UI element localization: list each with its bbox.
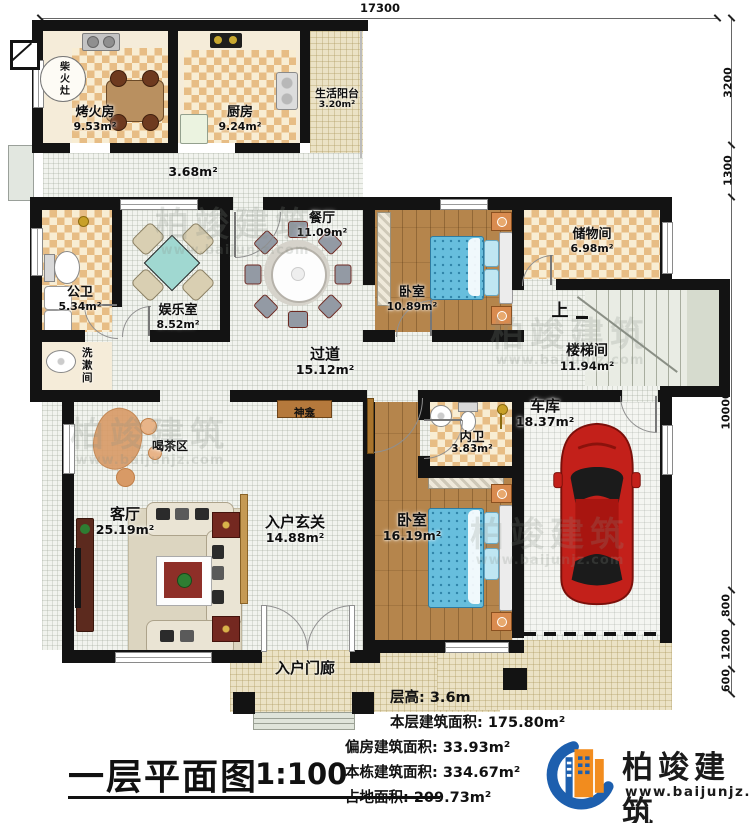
room-name: 客厅: [85, 506, 165, 523]
wall: [556, 279, 660, 290]
window: [662, 425, 673, 475]
cushion-icon: [180, 630, 194, 642]
tea-area-seat: [140, 418, 157, 435]
room-label-woshi1: 卧室 10.89m²: [372, 286, 452, 313]
porch-pillar: [503, 668, 527, 690]
porch-pillar: [352, 692, 374, 714]
room-label-keting: 客厅 25.19m²: [85, 506, 165, 537]
room-label-yangtai: 生活阳台 3.20m²: [305, 88, 369, 111]
window: [662, 222, 673, 274]
stair-landing: [687, 290, 719, 386]
window: [445, 642, 509, 653]
bed-sheet: [468, 238, 480, 296]
right-dimension-label: 600: [720, 659, 733, 703]
window: [120, 199, 198, 210]
wall: [719, 279, 730, 397]
room-label-yuleshi: 娱乐室 8.52m²: [138, 304, 218, 331]
door-leaf: [655, 396, 657, 432]
top-dimension-label: 17300: [352, 1, 408, 15]
tea-area-seat: [116, 468, 135, 487]
wood-partition: [240, 494, 248, 604]
nightstand-icon: [491, 212, 512, 231]
cushion-icon: [212, 566, 224, 580]
wall: [418, 466, 524, 478]
room-label-loutijian: 楼梯间 11.94m²: [545, 344, 629, 373]
plan-title: 一层平面图: [68, 748, 258, 800]
window: [63, 424, 75, 474]
room-name: 卧室: [372, 512, 452, 529]
stove-burner-icon: [87, 36, 99, 48]
room-area: 10.89m²: [372, 301, 452, 313]
room-name: 储物间: [552, 228, 632, 243]
dining-chair-icon: [245, 265, 262, 285]
wall: [40, 20, 368, 31]
room-name: 公卫: [45, 286, 115, 301]
room-label-annex-corridor: 3.68m²: [153, 165, 233, 179]
stat-line: 本层建筑面积: 175.80m²: [390, 711, 565, 732]
company-logo-url: www.baijunjz.com: [625, 784, 750, 800]
cushion-icon: [195, 508, 209, 520]
room-label-xishujian: 洗漱间: [80, 340, 92, 392]
room-name: 烤火房: [55, 106, 135, 121]
window: [31, 228, 43, 276]
door-leaf: [349, 605, 355, 652]
right-dimension-label: 800: [720, 584, 733, 628]
room-area: 15.12m²: [285, 363, 365, 377]
door-leaf: [550, 255, 552, 285]
stool-icon: [142, 70, 159, 87]
wall: [110, 143, 178, 153]
stair-up-dash: [576, 316, 588, 319]
room-label-canting: 餐厅 11.09m²: [282, 212, 362, 239]
room-area: 11.09m²: [282, 227, 362, 239]
room-name: 入户玄关: [245, 514, 345, 531]
cushion-icon: [212, 545, 224, 559]
bed-sheet: [468, 510, 480, 604]
kitchen-sink-icon: [276, 72, 298, 110]
wall: [30, 330, 85, 342]
room-area: 11.94m²: [545, 360, 629, 373]
cushion-icon: [175, 508, 189, 520]
right-dimension-label: 3200: [722, 61, 735, 105]
room-area: 3.68m²: [153, 165, 233, 179]
room-area: 14.88m²: [245, 531, 345, 545]
side-table: [212, 616, 240, 642]
stat-line: 占地面积: 209.73m²: [345, 786, 491, 807]
wall: [300, 20, 310, 143]
area-label-hechaqu: 喝茶区: [135, 440, 205, 453]
room-name: 楼梯间: [545, 344, 629, 360]
room-label-guodao: 过道 15.12m²: [285, 346, 365, 377]
side-table: [212, 512, 240, 538]
room-label-woshi2: 卧室 16.19m²: [372, 512, 452, 543]
shrine-box: 神龛: [277, 400, 332, 418]
room-area: 8.52m²: [138, 319, 218, 331]
stat-line: 偏房建筑面积: 33.93m²: [345, 736, 510, 757]
door-leaf: [234, 212, 236, 257]
room-name: 厨房: [200, 106, 280, 121]
stat-line: 本栋建筑面积: 334.67m²: [345, 761, 520, 782]
window: [440, 199, 488, 210]
wash-basin-icon: [46, 350, 76, 373]
room-label-menlang: 入户门廊: [245, 660, 365, 677]
tv-icon: [75, 548, 81, 608]
room-area: 3.83m²: [432, 444, 512, 456]
wall: [363, 330, 375, 342]
window: [115, 652, 212, 663]
wall: [363, 197, 375, 285]
porch-steps: [253, 712, 355, 730]
top-dimension-line: [40, 18, 718, 19]
stat-line: 层高: 3.6m: [390, 686, 471, 707]
room-area: 16.19m²: [372, 529, 452, 543]
cushion-icon: [160, 630, 174, 642]
wall: [220, 197, 230, 330]
stool-icon: [110, 70, 127, 87]
stool-icon: [142, 114, 159, 131]
room-area: 6.98m²: [552, 243, 632, 255]
doorway-patch: [233, 197, 263, 210]
plan-scale: 1:100: [255, 757, 347, 791]
car-icon: [548, 420, 646, 608]
room-area: 9.24m²: [200, 121, 280, 133]
company-logo-name: 柏竣建筑: [622, 742, 750, 823]
wall: [235, 143, 300, 153]
wall: [512, 197, 524, 290]
room-name: 过道: [285, 346, 365, 363]
wall: [512, 402, 524, 638]
floor-plan: 17300 3200 1300 10000 800 1200 600: [0, 0, 750, 823]
room-label-chuwujian: 储物间 6.98m²: [552, 228, 632, 255]
door-leaf: [261, 605, 267, 652]
room-label-chufang: 厨房 9.24m²: [200, 106, 280, 133]
door-leaf-wood: [367, 398, 374, 454]
garage-door-dashed: [524, 632, 660, 636]
toilet-icon: [54, 251, 80, 284]
right-dimension-label: 1300: [722, 149, 735, 193]
pillow-icon: [484, 269, 499, 296]
room-name: 内卫: [432, 430, 512, 444]
room-label-gongwei: 公卫 5.34m²: [45, 286, 115, 313]
ac-platform: [8, 145, 34, 201]
room-area: 3.20m²: [305, 100, 369, 110]
dining-chair-icon: [335, 265, 352, 285]
porch-pillar: [233, 692, 255, 714]
gas-burner-icon: [214, 36, 222, 44]
wall: [432, 330, 524, 342]
bed-headboard: [499, 232, 513, 304]
bed-headboard: [499, 505, 513, 611]
room-label-xuanguan: 入户玄关 14.88m²: [245, 514, 345, 545]
room-area: 9.53m²: [55, 121, 135, 133]
pillow-icon: [484, 240, 499, 267]
company-logo-icon: [537, 735, 619, 815]
dining-chair-icon: [288, 311, 308, 328]
wall: [43, 143, 70, 153]
cushion-icon: [212, 590, 224, 604]
wall: [375, 330, 395, 342]
room-name: 卧室: [372, 286, 452, 301]
wood-stove-circle: 柴火灶: [40, 56, 86, 102]
room-name: 餐厅: [282, 212, 362, 227]
dining-table-center: [291, 267, 305, 281]
gas-burner-icon: [229, 36, 237, 44]
plant-icon: [177, 573, 192, 588]
room-label-cheku: 车库 18.37m²: [500, 398, 590, 429]
wall: [30, 197, 42, 397]
room-area: 5.34m²: [45, 301, 115, 313]
stairs-up-label: 上: [548, 302, 572, 321]
shower-fixture-icon: [78, 216, 89, 227]
wall: [150, 330, 230, 342]
nightstand-icon: [491, 484, 512, 503]
pillow-icon: [484, 548, 499, 580]
wall: [168, 31, 178, 143]
stove-burner-icon: [103, 36, 115, 48]
room-area: 25.19m²: [85, 523, 165, 537]
room-label-kaohuofang: 烤火房 9.53m²: [55, 106, 135, 133]
room-name: 娱乐室: [138, 304, 218, 319]
nightstand-icon: [491, 612, 512, 631]
room-name: 柴火灶: [56, 58, 71, 100]
chimney-icon: [10, 40, 40, 70]
wall: [658, 390, 672, 402]
room-area: 18.37m²: [500, 415, 590, 429]
room-name: 车库: [500, 398, 590, 415]
nightstand-icon: [491, 306, 512, 325]
door-leaf: [424, 419, 462, 421]
shrine-label: 神龛: [294, 407, 315, 419]
room-label-neiwei: 内卫 3.83m²: [432, 430, 512, 456]
pillow-icon: [484, 512, 499, 544]
